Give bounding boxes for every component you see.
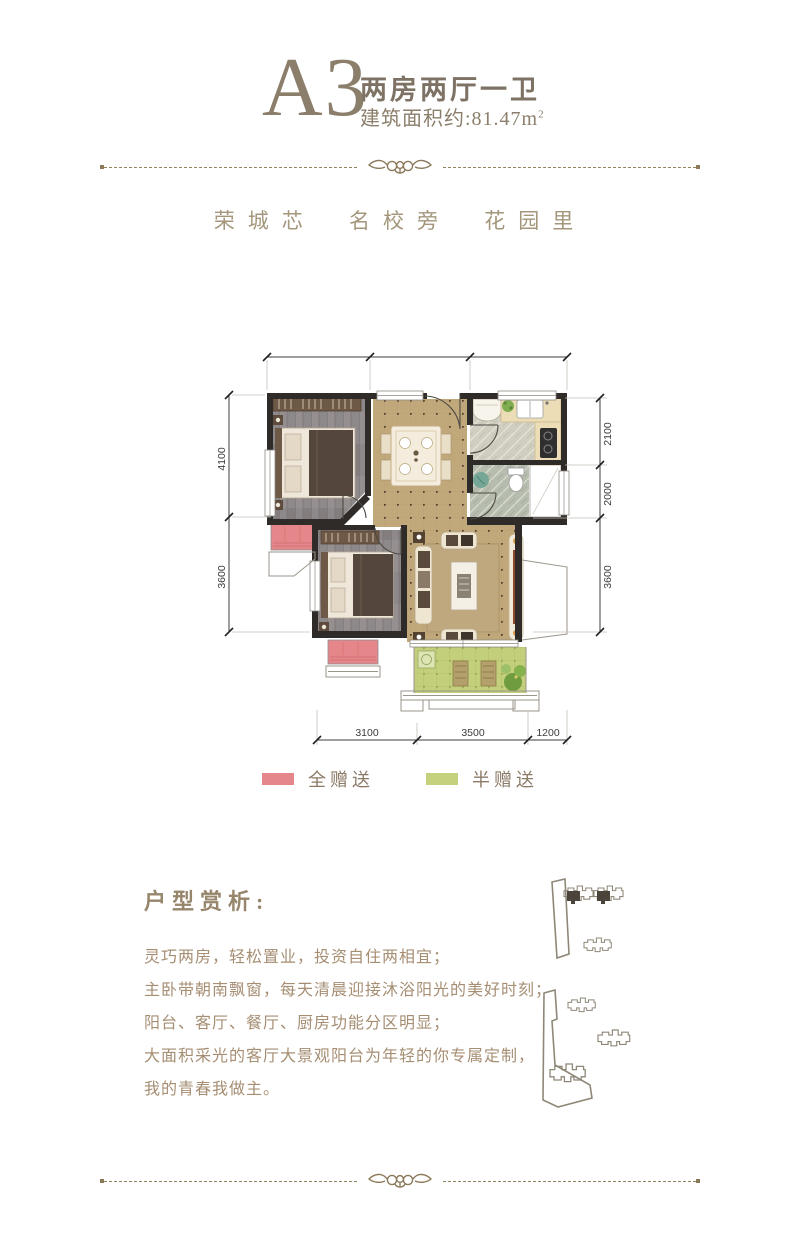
flourish-ornament-icon bbox=[367, 156, 433, 178]
divider-dash bbox=[104, 167, 357, 168]
analysis-line: 大面积采光的客厅大景观阳台为年轻的你专属定制， bbox=[144, 1047, 552, 1080]
divider-dash bbox=[443, 1181, 696, 1182]
divider-endcap bbox=[696, 165, 700, 169]
full-gift-label: 全赠送 bbox=[308, 766, 374, 792]
dim-bottom-2: 3500 bbox=[461, 727, 485, 739]
full-gift-swatch bbox=[262, 773, 294, 785]
floorplan-svg: 4100 3600 2100 2000 3600 3100 3500 1200 bbox=[215, 348, 625, 753]
legend: 全赠送 半赠送 bbox=[0, 766, 800, 792]
analysis-heading: 户型赏析: bbox=[144, 884, 269, 916]
legend-item-half-gift: 半赠送 bbox=[426, 766, 538, 792]
siteplan-svg bbox=[524, 868, 720, 1120]
tagline-item-1: 荣城芯 bbox=[214, 209, 316, 233]
divider-endcap bbox=[696, 1179, 700, 1183]
half-gift-label: 半赠送 bbox=[472, 766, 538, 792]
divider-dash bbox=[443, 167, 696, 168]
siteplan-buildings bbox=[543, 879, 630, 1107]
dim-left-2: 3600 bbox=[216, 565, 228, 589]
tagline-item-2: 名校旁 bbox=[349, 209, 451, 233]
page-title-area: 建筑面积约:81.47m2 bbox=[360, 102, 545, 131]
analysis-line: 阳台、客厅、餐厅、厨房功能分区明显； bbox=[144, 1014, 552, 1047]
light-shaft bbox=[530, 465, 561, 517]
tagline-item-3: 花园里 bbox=[484, 209, 586, 233]
dining-table bbox=[381, 426, 451, 486]
analysis-lines: 灵巧两房，轻松置业，投资自住两相宜； 主卧带朝南飘窗，每天清晨迎接沐浴阳光的美好… bbox=[144, 948, 552, 1113]
flourish-ornament-icon bbox=[367, 1170, 433, 1192]
analysis-line: 我的青春我做主。 bbox=[144, 1080, 552, 1113]
half-gift-swatch bbox=[426, 773, 458, 785]
dim-bottom-1: 3100 bbox=[355, 727, 379, 739]
tagline: 荣城芯 名校旁 花园里 bbox=[0, 205, 800, 235]
analysis-line: 主卧带朝南飘窗，每天清晨迎接沐浴阳光的美好时刻； bbox=[144, 981, 552, 1014]
dim-bottom-3: 1200 bbox=[536, 727, 560, 739]
dim-right-1: 2100 bbox=[602, 422, 614, 446]
area-sup: 2 bbox=[538, 108, 545, 120]
dim-left-1: 4100 bbox=[216, 447, 228, 471]
bay-window-full-gift-2 bbox=[328, 640, 378, 664]
divider-dash bbox=[104, 1181, 357, 1182]
divider-top bbox=[100, 156, 700, 178]
area-value: 建筑面积约:81.47m bbox=[360, 108, 538, 130]
divider-bottom bbox=[100, 1170, 700, 1192]
dim-right-2: 2000 bbox=[602, 482, 614, 506]
analysis-line: 灵巧两房，轻松置业，投资自住两相宜； bbox=[144, 948, 552, 981]
page-title-unit: A3 bbox=[262, 46, 369, 130]
dim-right-3: 3600 bbox=[602, 565, 614, 589]
bay-window-full-gift-1 bbox=[271, 524, 316, 550]
siteplan-highlighted-units bbox=[567, 891, 610, 904]
legend-item-full-gift: 全赠送 bbox=[262, 766, 374, 792]
